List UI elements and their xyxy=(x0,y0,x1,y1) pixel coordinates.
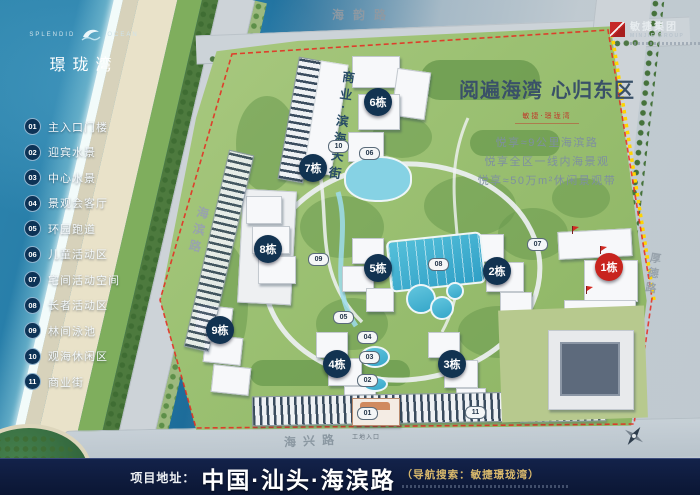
legend-item: 03中心水景 xyxy=(24,169,120,186)
legend-item: 07宅间活动空间 xyxy=(24,271,120,288)
slogan-block: 阅遍海湾 心归东区 敏捷·璟珑湾 悦享≈9公里海滨路 悦享全区一线内海景观 悦享… xyxy=(452,74,642,191)
building-label: 5栋 xyxy=(369,260,386,276)
building-label: 6栋 xyxy=(369,94,386,110)
building-badge-7: 7栋 xyxy=(299,154,327,182)
legend: 01主入口门楼 02迎宾水景 03中心水景 04景观会客厅 05环园跑道 06儿… xyxy=(24,118,120,390)
poi-marker-06: 06 xyxy=(359,147,380,160)
legend-number-badge: 05 xyxy=(24,220,41,237)
legend-label: 长者活动区 xyxy=(48,297,108,313)
legend-label: 主入口门楼 xyxy=(48,119,108,135)
building-label: 4栋 xyxy=(328,356,345,372)
building-label: 7栋 xyxy=(304,160,321,176)
legend-number-badge: 04 xyxy=(24,195,41,212)
gate-label: 工地入口 xyxy=(352,432,380,441)
building-badge-2: 2栋 xyxy=(483,257,511,285)
legend-item: 04景观会客厅 xyxy=(24,195,120,212)
legend-number-badge: 09 xyxy=(24,322,41,339)
poi-marker-01: 01 xyxy=(357,407,378,420)
legend-item: 11商业街 xyxy=(24,373,120,390)
poi-marker-05: 05 xyxy=(333,311,354,324)
disclaimer-strip xyxy=(402,485,570,488)
poi-marker-04: 04 xyxy=(357,331,378,344)
legend-item: 06儿童活动区 xyxy=(24,246,120,263)
poi-marker-08: 08 xyxy=(428,258,449,271)
legend-number-badge: 02 xyxy=(24,144,41,161)
poi-marker-03: 03 xyxy=(359,351,380,364)
legend-item: 10观海休闲区 xyxy=(24,348,120,365)
legend-item: 09林间泳池 xyxy=(24,322,120,339)
address-label: 项目地址： xyxy=(130,469,195,486)
legend-label: 观海休闲区 xyxy=(48,348,108,364)
slogan-line-2: 悦享全区一线内海景观 xyxy=(452,153,642,172)
nav-search-text: （导航搜索：敏捷璟珑湾） xyxy=(402,467,570,482)
legend-number-badge: 08 xyxy=(24,297,41,314)
legend-label: 宅间活动空间 xyxy=(48,272,120,288)
developer-logo: 敏捷集团 MINJIE GROUP xyxy=(610,22,700,45)
road-label-haixing: 海兴路 xyxy=(284,431,342,451)
legend-item: 05环园跑道 xyxy=(24,220,120,237)
legend-label: 儿童活动区 xyxy=(48,246,108,262)
building-label: 8栋 xyxy=(259,241,276,257)
poi-marker-02: 02 xyxy=(357,374,378,387)
logo-text-en-right: OCEAN xyxy=(107,32,138,38)
slogan-line-3: 悦享≈50万m²休闲景观带 xyxy=(452,172,642,191)
slogan-calligraphy: 阅遍海湾 心归东区 xyxy=(452,74,642,103)
legend-number-badge: 06 xyxy=(24,246,41,263)
building-badge-6: 6栋 xyxy=(364,88,392,116)
legend-number-badge: 07 xyxy=(24,271,41,288)
building-badge-5: 5栋 xyxy=(364,254,392,282)
legend-label: 商业街 xyxy=(48,374,84,390)
logo-text-cn: 璟珑湾 xyxy=(24,51,144,75)
building-badge-3: 3栋 xyxy=(438,350,466,378)
poi-marker-10: 10 xyxy=(328,140,349,153)
building-badge-8: 8栋 xyxy=(254,235,282,263)
building-label: 1栋 xyxy=(600,259,617,275)
legend-label: 环园跑道 xyxy=(48,221,96,237)
site-plan-poster: 1栋 2栋 3栋 4栋 5栋 6栋 7栋 8栋 9栋 01 02 03 04 0… xyxy=(0,0,700,495)
building-badge-4: 4栋 xyxy=(323,350,351,378)
slogan-line-1: 悦享≈9公里海滨路 xyxy=(452,134,642,153)
legend-label: 林间泳池 xyxy=(48,323,96,339)
legend-label: 迎宾水景 xyxy=(48,144,96,160)
road-label-haiyun: 海韵路 xyxy=(332,6,395,23)
building-badge-1: 1栋 xyxy=(595,253,623,281)
legend-number-badge: 01 xyxy=(24,118,41,135)
developer-name: 敏捷集团 xyxy=(630,22,700,33)
legend-item: 01主入口门楼 xyxy=(24,118,120,135)
legend-item: 02迎宾水景 xyxy=(24,144,120,161)
compass-icon xyxy=(622,424,646,453)
developer-mark-icon xyxy=(610,22,625,37)
building-label: 9栋 xyxy=(211,322,228,338)
slogan-seal: 敏捷·璟珑湾 xyxy=(452,111,642,124)
developer-tagline-strip xyxy=(630,42,700,45)
poi-marker-07: 07 xyxy=(527,238,548,251)
poi-marker-11: 11 xyxy=(465,406,486,419)
wave-icon xyxy=(79,24,103,46)
legend-number-badge: 03 xyxy=(24,169,41,186)
legend-number-badge: 11 xyxy=(24,373,41,390)
logo-text-en-left: SPLENDID xyxy=(29,32,75,38)
legend-label: 中心水景 xyxy=(48,170,96,186)
poi-marker-09: 09 xyxy=(308,253,329,266)
nav-search-hint: （导航搜索：敏捷璟珑湾） xyxy=(402,467,570,488)
building-label: 3栋 xyxy=(443,356,460,372)
legend-item: 08长者活动区 xyxy=(24,297,120,314)
legend-label: 景观会客厅 xyxy=(48,195,108,211)
footer-bar: 项目地址： 中国·汕头·海滨路 （导航搜索：敏捷璟珑湾） xyxy=(0,458,700,495)
building-label: 2栋 xyxy=(488,263,505,279)
legend-number-badge: 10 xyxy=(24,348,41,365)
project-logo: SPLENDID OCEAN 璟珑湾 xyxy=(24,24,144,75)
developer-name-en: MINJIE GROUP xyxy=(630,33,700,39)
project-address: 中国·汕头·海滨路 xyxy=(201,461,395,495)
building-badge-9: 9栋 xyxy=(206,316,234,344)
